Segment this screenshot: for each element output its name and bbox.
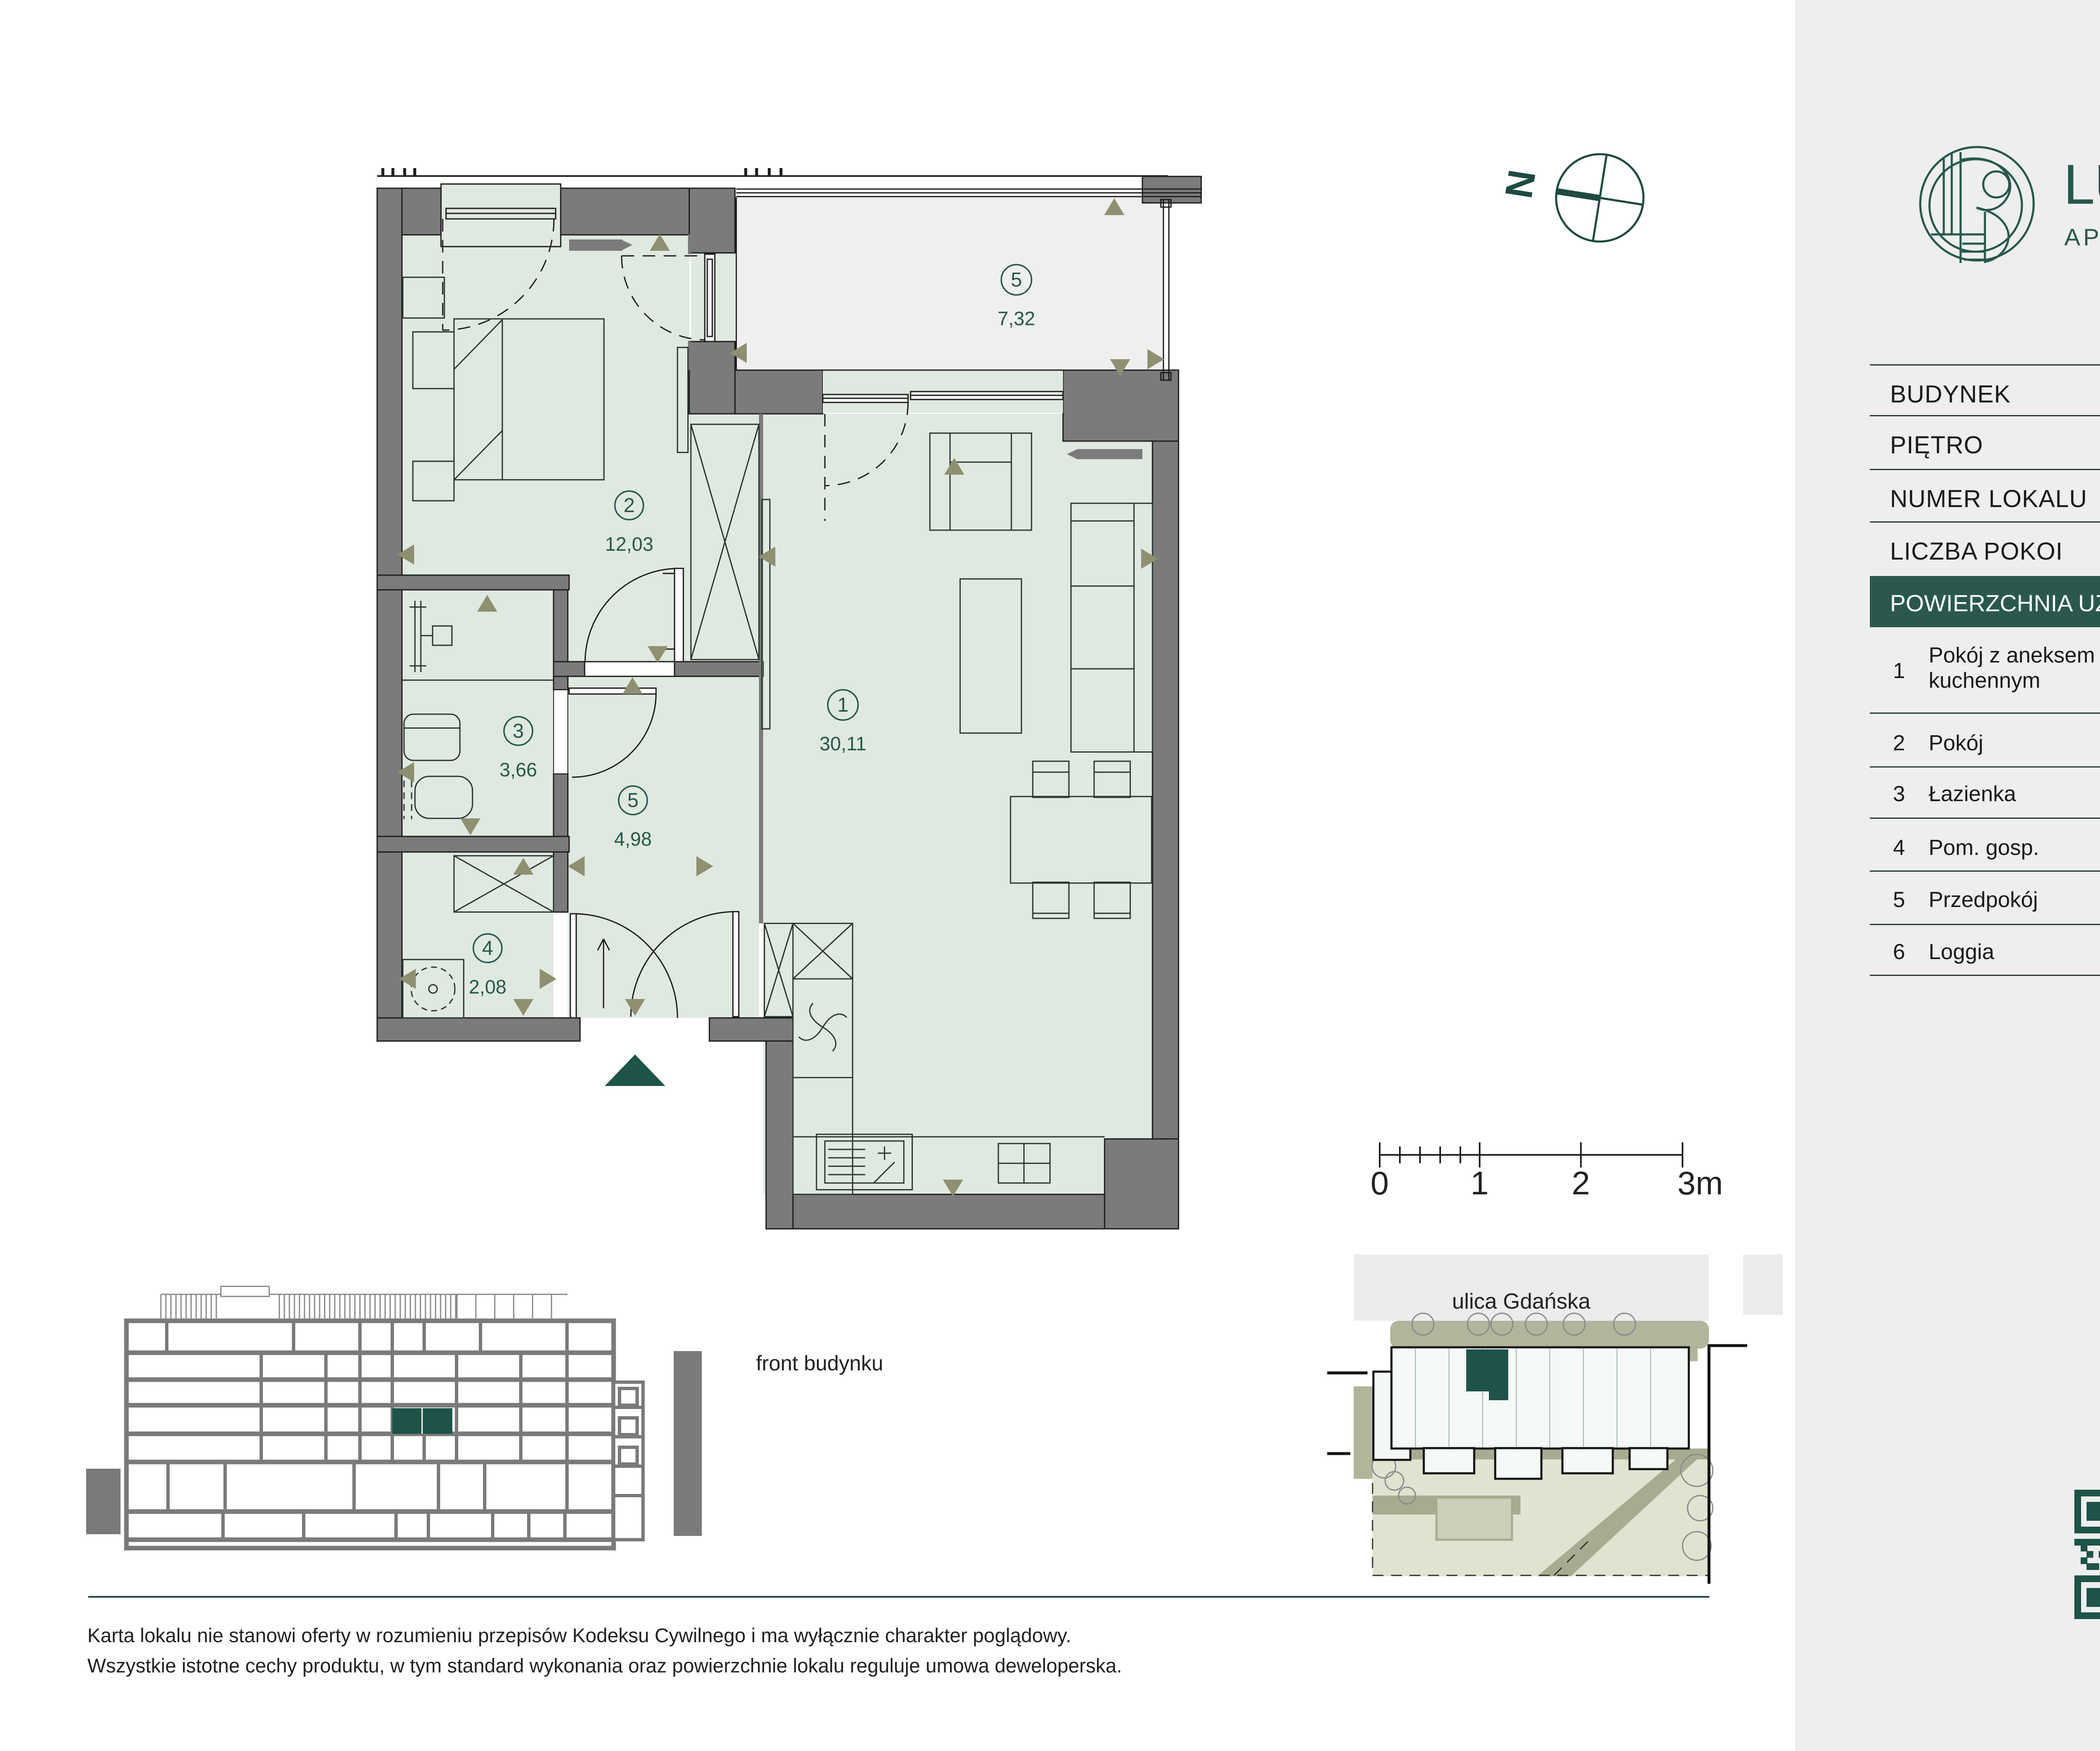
svg-text:5: 5 — [627, 789, 639, 812]
svg-text:12,03: 12,03 — [605, 533, 653, 555]
svg-text:5: 5 — [1011, 269, 1022, 291]
svg-text:3m: 3m — [1677, 1165, 1723, 1202]
svg-text:7,32: 7,32 — [997, 308, 1035, 329]
svg-text:3: 3 — [513, 720, 524, 742]
svg-text:2: 2 — [624, 494, 635, 517]
svg-text:N: N — [1497, 167, 1544, 201]
svg-text:4: 4 — [482, 937, 493, 960]
svg-text:1: 1 — [1470, 1165, 1488, 1202]
svg-text:LUXSFERA: LUXSFERA — [2063, 153, 2100, 216]
svg-text:3,66: 3,66 — [499, 759, 537, 781]
svg-text:2: 2 — [1572, 1165, 1590, 1202]
svg-text:APARTAMENTY: APARTAMENTY — [2064, 224, 2100, 251]
svg-text:4,98: 4,98 — [614, 828, 652, 850]
svg-text:front budynku: front budynku — [756, 1351, 883, 1375]
svg-text:1: 1 — [837, 694, 849, 716]
svg-text:30,11: 30,11 — [819, 733, 866, 755]
svg-text:ulica Gdańska: ulica Gdańska — [1452, 1289, 1591, 1314]
svg-text:2,08: 2,08 — [469, 976, 507, 998]
svg-text:0: 0 — [1370, 1165, 1389, 1202]
